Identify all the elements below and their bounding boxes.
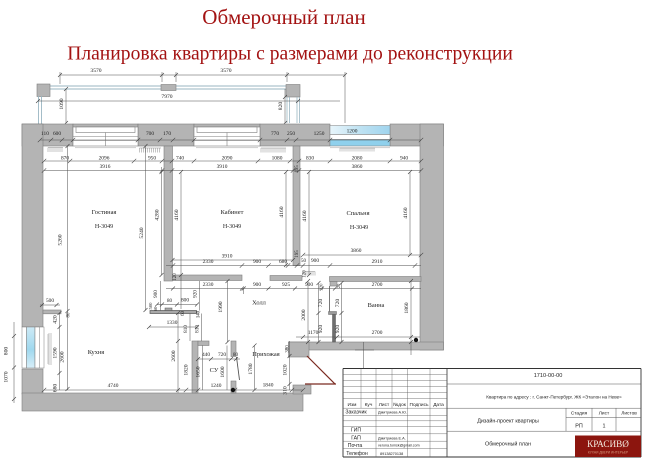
svg-text:4280: 4280 <box>155 209 161 220</box>
svg-text:680: 680 <box>53 384 59 393</box>
svg-text:3860: 3860 <box>351 248 362 254</box>
svg-text:Стадия: Стадия <box>571 411 588 417</box>
svg-text:КУХНИ ДВЕРИ ИНТЕРЬЕР: КУХНИ ДВЕРИ ИНТЕРЬЕР <box>588 451 628 455</box>
svg-text:500: 500 <box>46 298 54 304</box>
svg-text:Н-3049: Н-3049 <box>223 224 241 230</box>
svg-text:2700: 2700 <box>372 330 383 336</box>
svg-text:810: 810 <box>183 325 189 333</box>
svg-text:2330: 2330 <box>203 282 214 288</box>
svg-text:950: 950 <box>148 156 156 162</box>
svg-text:Спальня: Спальня <box>346 210 369 217</box>
svg-text:2080: 2080 <box>352 156 363 162</box>
svg-text:600: 600 <box>53 131 61 137</box>
svg-text:2330: 2330 <box>203 259 214 265</box>
svg-text:120: 120 <box>173 273 178 281</box>
svg-text:220: 220 <box>319 283 324 291</box>
svg-text:Н-3049: Н-3049 <box>95 224 113 230</box>
svg-text:4160: 4160 <box>174 209 180 220</box>
svg-text:2700: 2700 <box>372 282 383 288</box>
svg-text:Планировка квартиры с размерам: Планировка квартиры с размерами до рекон… <box>67 44 513 65</box>
svg-text:1240: 1240 <box>211 383 222 389</box>
svg-text:1: 1 <box>603 424 606 430</box>
svg-text:2600: 2600 <box>60 351 66 362</box>
svg-text:3916: 3916 <box>100 164 111 170</box>
svg-text:900: 900 <box>253 259 261 265</box>
svg-text:195: 195 <box>295 165 300 173</box>
svg-text:3910: 3910 <box>217 164 228 170</box>
svg-text:800: 800 <box>181 298 189 304</box>
svg-text:800: 800 <box>4 347 10 356</box>
svg-text:1710-00-00: 1710-00-00 <box>534 373 563 379</box>
svg-text:1070: 1070 <box>4 371 10 382</box>
svg-text:60: 60 <box>153 306 158 311</box>
svg-text:830: 830 <box>306 156 314 162</box>
svg-text:50: 50 <box>301 259 307 264</box>
svg-text:Заказчик: Заказчик <box>345 410 367 416</box>
svg-text:Кабинет: Кабинет <box>221 209 244 216</box>
svg-text:Прихожая: Прихожая <box>252 351 279 358</box>
svg-text:1020: 1020 <box>283 364 289 375</box>
svg-text:Куч: Куч <box>365 402 373 408</box>
svg-text:5240: 5240 <box>139 227 145 238</box>
svg-text:Дмитриева Е.А.: Дмитриева Е.А. <box>378 436 406 440</box>
svg-text:1860: 1860 <box>404 302 410 313</box>
svg-text:310: 310 <box>283 386 289 395</box>
svg-text:Листов: Листов <box>621 411 637 417</box>
svg-text:195: 195 <box>295 250 300 258</box>
svg-text:1780: 1780 <box>248 363 254 374</box>
svg-text:Обмерочный план: Обмерочный план <box>485 441 531 448</box>
svg-text:3910: 3910 <box>222 254 233 260</box>
svg-text:170: 170 <box>163 131 171 137</box>
svg-text:5260: 5260 <box>58 234 64 245</box>
svg-text:ГИП: ГИП <box>351 428 362 434</box>
svg-text:80: 80 <box>67 312 72 318</box>
svg-text:3570: 3570 <box>220 68 231 74</box>
svg-text:4160: 4160 <box>302 210 308 221</box>
svg-text:380: 380 <box>286 345 291 353</box>
svg-text:4160: 4160 <box>279 206 285 217</box>
svg-text:verona.tomsk@gmail.com: verona.tomsk@gmail.com <box>378 444 420 448</box>
svg-text:920: 920 <box>318 325 324 334</box>
svg-text:900: 900 <box>253 282 261 288</box>
svg-text:Обмерочный план: Обмерочный план <box>202 5 365 29</box>
svg-text:80: 80 <box>167 299 173 304</box>
svg-text:Холл: Холл <box>252 300 267 307</box>
svg-text:440: 440 <box>202 352 210 358</box>
svg-text:700: 700 <box>146 131 154 137</box>
svg-text:2096: 2096 <box>99 156 110 162</box>
svg-text:900: 900 <box>311 258 319 264</box>
svg-text:Квартира по адресу : г. Санкт: Квартира по адресу : г. Санкт-Петербург.… <box>486 394 622 399</box>
svg-text:140: 140 <box>197 310 202 318</box>
svg-text:1820: 1820 <box>184 364 190 375</box>
svg-text:770: 770 <box>271 131 279 137</box>
svg-text:420: 420 <box>53 315 59 324</box>
svg-text:1840: 1840 <box>263 383 274 389</box>
svg-text:2090: 2090 <box>222 156 233 162</box>
svg-text:250: 250 <box>287 131 295 137</box>
svg-text:500: 500 <box>148 302 153 310</box>
svg-text:3570: 3570 <box>90 68 101 74</box>
svg-text:80: 80 <box>233 353 239 358</box>
svg-text:4740: 4740 <box>108 383 119 389</box>
svg-text:Н-3049: Н-3049 <box>350 225 368 231</box>
svg-text:810: 810 <box>195 325 201 333</box>
svg-text:Подпись: Подпись <box>410 402 429 408</box>
svg-text:720: 720 <box>218 352 226 358</box>
svg-text:720: 720 <box>318 299 324 308</box>
svg-text:КРАСИВØ: КРАСИВØ <box>587 439 629 449</box>
svg-text:60: 60 <box>181 311 186 316</box>
svg-text:1200: 1200 <box>347 129 358 135</box>
svg-text:Изм: Изм <box>348 402 357 408</box>
svg-text:89138270138: 89138270138 <box>380 452 403 456</box>
svg-text:Кухня: Кухня <box>88 349 105 356</box>
svg-text:№док: №док <box>393 402 407 408</box>
svg-text:920: 920 <box>193 290 199 298</box>
svg-text:Дмитриева А.Ю.: Дмитриева А.Ю. <box>378 410 407 414</box>
svg-text:1090: 1090 <box>59 98 65 109</box>
svg-text:1080: 1080 <box>272 156 283 162</box>
svg-text:2600: 2600 <box>171 350 177 361</box>
svg-text:Гостиная: Гостиная <box>92 209 117 216</box>
svg-text:740: 740 <box>176 156 184 162</box>
svg-text:3860: 3860 <box>352 164 363 170</box>
svg-text:Ванна: Ванна <box>368 302 385 309</box>
svg-text:7970: 7970 <box>161 94 172 100</box>
svg-text:870: 870 <box>61 156 69 162</box>
svg-text:1650: 1650 <box>196 366 202 377</box>
svg-text:1330: 1330 <box>167 320 178 326</box>
svg-text:2910: 2910 <box>372 259 383 265</box>
svg-text:120: 120 <box>303 270 308 278</box>
svg-text:925: 925 <box>282 282 290 288</box>
svg-text:Лист: Лист <box>599 411 610 417</box>
svg-text:Почта: Почта <box>348 443 363 449</box>
svg-text:1250: 1250 <box>314 131 325 137</box>
svg-text:Лист: Лист <box>379 402 390 408</box>
svg-text:820: 820 <box>278 102 284 111</box>
svg-text:1600: 1600 <box>220 366 226 377</box>
svg-text:20: 20 <box>336 283 341 288</box>
svg-text:ГАП: ГАП <box>351 436 361 442</box>
svg-text:РП: РП <box>575 424 583 430</box>
svg-text:110: 110 <box>41 131 49 137</box>
svg-text:Телефон: Телефон <box>346 451 368 457</box>
svg-text:СУ: СУ <box>210 367 219 374</box>
svg-text:920: 920 <box>335 325 341 334</box>
svg-text:Дизайн-проект квартиры: Дизайн-проект квартиры <box>477 418 539 425</box>
svg-text:4160: 4160 <box>403 207 409 218</box>
svg-text:940: 940 <box>400 156 408 162</box>
svg-text:1990: 1990 <box>218 301 224 312</box>
svg-text:900: 900 <box>153 290 159 298</box>
svg-text:Дата: Дата <box>433 402 444 408</box>
svg-text:2000: 2000 <box>301 309 307 320</box>
svg-text:1590: 1590 <box>53 347 59 358</box>
svg-text:720: 720 <box>335 299 341 308</box>
